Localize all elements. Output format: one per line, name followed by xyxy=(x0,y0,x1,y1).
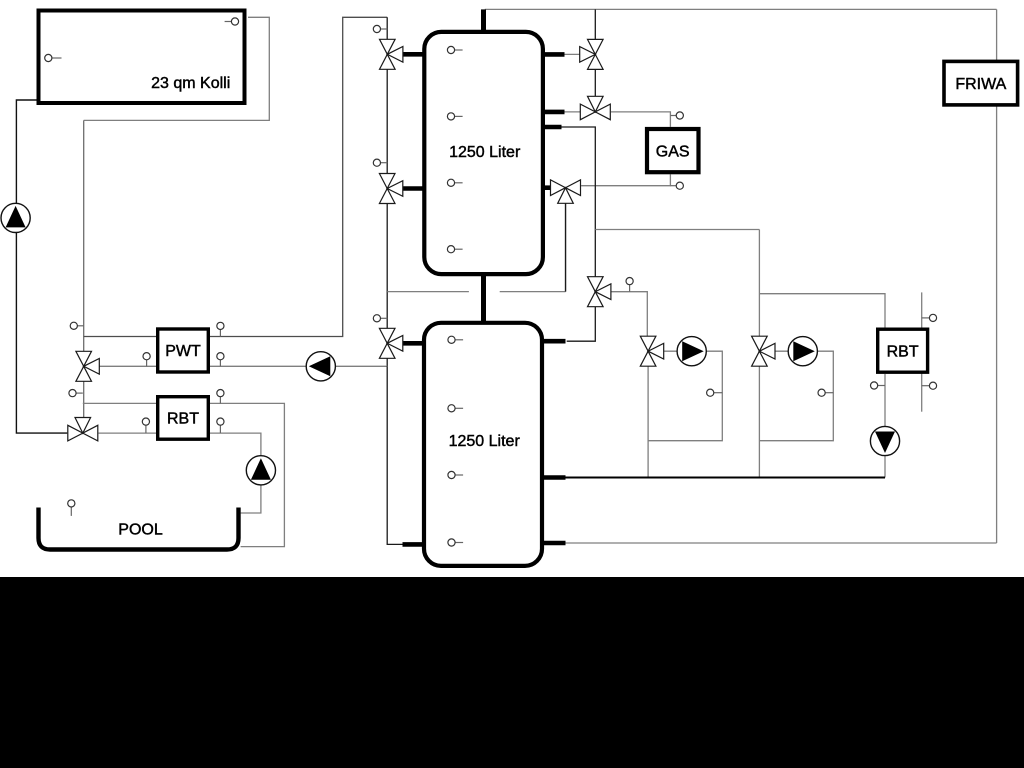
svg-text:POOL: POOL xyxy=(118,521,163,538)
svg-text:1250 Liter: 1250 Liter xyxy=(449,433,521,450)
svg-text:1250 Liter: 1250 Liter xyxy=(449,144,521,161)
svg-text:GAS: GAS xyxy=(656,143,690,160)
svg-text:RBT: RBT xyxy=(167,411,199,428)
svg-text:PWT: PWT xyxy=(165,343,201,360)
svg-text:23 qm Kolli: 23 qm Kolli xyxy=(151,75,230,92)
svg-text:FRIWA: FRIWA xyxy=(955,76,1006,93)
svg-text:RBT: RBT xyxy=(887,343,919,360)
